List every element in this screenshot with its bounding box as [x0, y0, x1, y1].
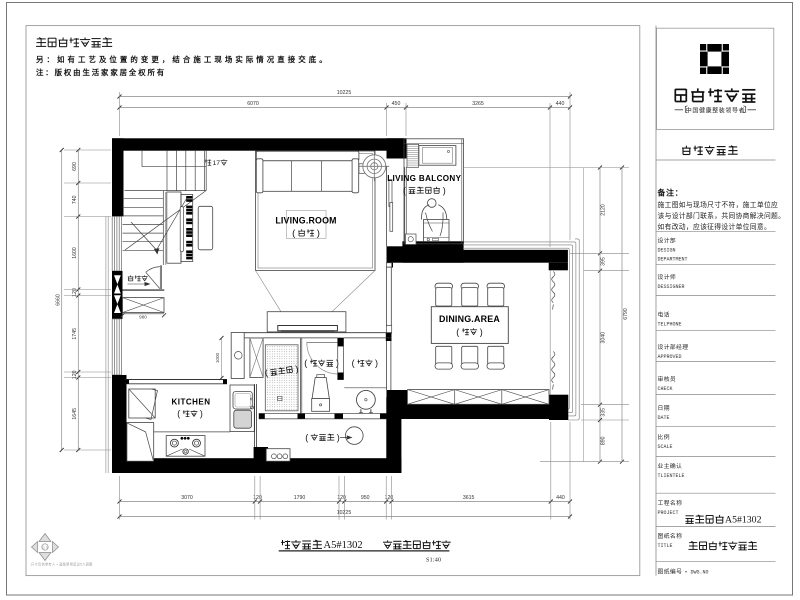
svg-text:DEPARTMENT: DEPARTMENT: [658, 256, 688, 262]
svg-text:施工图如与现场尺寸不符，施工单位应: 施工图如与现场尺寸不符，施工单位应: [658, 200, 779, 209]
svg-text:6790: 6790: [623, 308, 629, 320]
svg-text:审核员: 审核员: [658, 375, 677, 383]
svg-text:CHECK: CHECK: [658, 386, 673, 392]
svg-text:450: 450: [392, 101, 401, 107]
svg-text:DESIGN: DESIGN: [658, 247, 676, 253]
svg-text:PROJECT: PROJECT: [658, 510, 679, 516]
svg-text:么 8: 么 8: [42, 545, 48, 550]
svg-text:): ): [317, 228, 320, 239]
svg-text:TITLE: TITLE: [658, 543, 673, 549]
svg-text:690: 690: [72, 162, 78, 171]
svg-text:尺寸仅供参考人 • 盗版禁用复议5人调整: 尺寸仅供参考人 • 盗版禁用复议5人调整: [31, 562, 93, 567]
svg-text:LIVING.ROOM: LIVING.ROOM: [275, 216, 336, 226]
svg-text:950: 950: [361, 495, 370, 501]
svg-text:图纸编号: 图纸编号: [658, 568, 683, 576]
svg-text:740: 740: [72, 195, 78, 204]
svg-text:): ): [200, 409, 203, 419]
svg-text:1745: 1745: [72, 328, 78, 340]
svg-text:中国健康整装领导者: 中国健康整装领导者: [686, 106, 745, 114]
svg-text:APPROVED: APPROVED: [658, 354, 682, 360]
svg-text:): ): [375, 358, 378, 368]
svg-text:3615: 3615: [463, 495, 475, 501]
svg-text:440: 440: [556, 495, 565, 501]
svg-text:6660: 6660: [56, 294, 62, 306]
svg-text:TELPHONE: TELPHONE: [658, 322, 682, 328]
svg-text:KITCHEN: KITCHEN: [171, 397, 210, 406]
svg-text:• DWG.NO: • DWG.NO: [685, 570, 709, 576]
svg-text:另：如有工艺及位置的变更，结合施工现场实际情况直接交底。: 另：如有工艺及位置的变更，结合施工现场实际情况直接交底。: [36, 55, 330, 64]
svg-text:DINING.AREA: DINING.AREA: [439, 314, 500, 324]
svg-text:比例: 比例: [658, 433, 670, 441]
svg-text:3040: 3040: [601, 332, 607, 344]
svg-text:设计部: 设计部: [658, 236, 677, 244]
svg-text:TLIENTELE: TLIENTELE: [658, 473, 685, 479]
svg-text:1000: 1000: [215, 352, 220, 363]
svg-text:(: (: [305, 432, 308, 442]
svg-text:业主确认: 业主确认: [658, 462, 683, 470]
svg-text:3265: 3265: [472, 101, 484, 107]
svg-text:120: 120: [337, 495, 346, 501]
svg-text:10225: 10225: [337, 90, 352, 96]
svg-text:980: 980: [139, 314, 147, 319]
svg-text:S1:40: S1:40: [426, 557, 441, 564]
svg-text:395: 395: [601, 257, 607, 266]
svg-text:备注：: 备注：: [657, 188, 684, 198]
svg-text:1600: 1600: [72, 247, 78, 259]
svg-text:(: (: [352, 358, 355, 368]
svg-text:电话: 电话: [658, 311, 670, 319]
svg-text:日期: 日期: [658, 405, 670, 412]
svg-text:设计部经理: 设计部经理: [658, 343, 689, 351]
svg-text:(: (: [403, 185, 406, 195]
svg-text:2120: 2120: [601, 204, 607, 216]
svg-text:120: 120: [72, 370, 78, 379]
svg-text:120: 120: [385, 495, 394, 501]
svg-text:如有改动，应该征得设计单位同意。: 如有改动，应该征得设计单位同意。: [658, 222, 772, 231]
svg-text:): ): [337, 432, 340, 442]
svg-text:DATE: DATE: [658, 415, 670, 421]
svg-text:1645: 1645: [72, 408, 78, 420]
svg-text:A5#1302: A5#1302: [725, 515, 762, 526]
svg-text:(: (: [456, 327, 459, 337]
svg-text:440: 440: [556, 101, 565, 107]
svg-text:120: 120: [253, 495, 262, 501]
svg-text:图纸名称: 图纸名称: [658, 532, 683, 540]
svg-text:(: (: [304, 358, 307, 368]
svg-text:该与设计部门联系，共同协商解决问题。: 该与设计部门联系，共同协商解决问题。: [658, 211, 786, 220]
svg-text:): ): [480, 327, 483, 337]
svg-text:6070: 6070: [247, 101, 259, 107]
svg-text:(: (: [177, 409, 180, 419]
svg-text:1790: 1790: [294, 495, 306, 501]
svg-text:335: 335: [601, 408, 607, 417]
svg-text:17: 17: [213, 160, 221, 167]
svg-text:): ): [443, 185, 446, 195]
svg-text:设计师: 设计师: [658, 273, 677, 281]
svg-text:工程名称: 工程名称: [658, 499, 683, 507]
svg-text:3070: 3070: [181, 495, 193, 501]
svg-text:A5#1302: A5#1302: [324, 540, 363, 551]
svg-text:890: 890: [601, 436, 607, 445]
svg-text:注：版权由生活家家居全权所有: 注：版权由生活家家居全权所有: [36, 68, 166, 77]
svg-text:SCALE: SCALE: [658, 444, 673, 450]
svg-text:DESSIGNER: DESSIGNER: [658, 284, 685, 290]
svg-text:LIVING BALCONY: LIVING BALCONY: [387, 174, 461, 183]
